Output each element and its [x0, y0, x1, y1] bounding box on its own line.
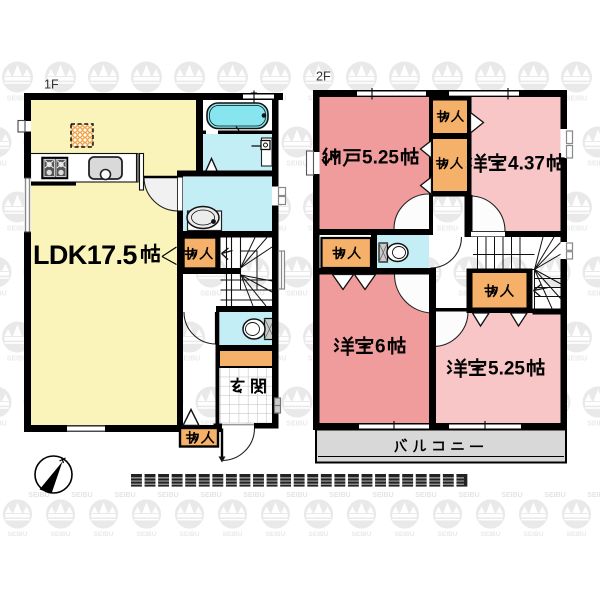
svg-text:SEIBU: SEIBU: [28, 492, 49, 499]
svg-text:SEIBU: SEIBU: [157, 492, 178, 499]
svg-text:SEIBU: SEIBU: [286, 492, 307, 499]
svg-text:5.25: 5.25: [362, 148, 399, 169]
svg-text:SEIBU: SEIBU: [114, 492, 135, 499]
svg-text:SEIBU: SEIBU: [71, 492, 92, 499]
svg-text:SEIBU: SEIBU: [415, 492, 436, 499]
svg-text:SEIBU: SEIBU: [501, 492, 522, 499]
svg-text:5.25: 5.25: [488, 359, 525, 380]
svg-text:LDK17.5: LDK17.5: [33, 240, 137, 270]
svg-text:SEIBU: SEIBU: [587, 492, 600, 499]
svg-text:4.37: 4.37: [508, 154, 545, 175]
svg-text:2F: 2F: [316, 70, 331, 84]
svg-text:SEIBU: SEIBU: [200, 492, 221, 499]
svg-text:SEIBU: SEIBU: [329, 492, 350, 499]
svg-text:SEIBU: SEIBU: [372, 492, 393, 499]
svg-text:SEIBU: SEIBU: [243, 492, 264, 499]
svg-text:SEIBU: SEIBU: [544, 492, 565, 499]
svg-text:6: 6: [375, 337, 386, 358]
svg-text:SEIBU: SEIBU: [458, 492, 479, 499]
svg-text:1F: 1F: [44, 78, 59, 92]
